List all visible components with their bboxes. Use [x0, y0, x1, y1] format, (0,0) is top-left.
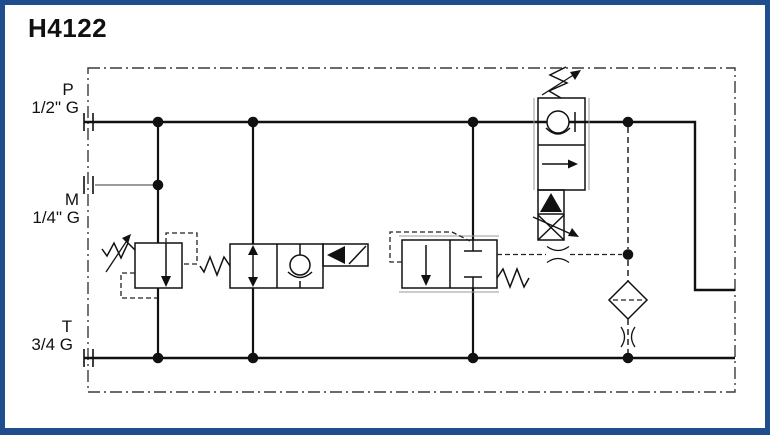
junction-dot [248, 117, 259, 128]
flow-arrowhead [568, 160, 578, 169]
junction-dot [153, 180, 164, 191]
solenoid-diagonal [349, 246, 366, 264]
page-border [0, 3, 770, 433]
junction-dot [153, 353, 164, 364]
junction-dot [153, 117, 164, 128]
spring-icon [549, 67, 567, 98]
solenoid-valve [200, 244, 368, 288]
pilot-triangle [540, 193, 562, 212]
valve-body [135, 243, 182, 288]
adjust-arrow-icon [106, 239, 128, 272]
check-valve-icon [290, 255, 310, 275]
flow-arrowhead-up [248, 245, 258, 255]
pilot-operated-valve [390, 232, 622, 292]
page-border-rect [3, 3, 768, 433]
adjust-arrowhead [570, 70, 581, 80]
adjust-arrowhead [568, 228, 579, 237]
port-p-size: 1/2" G [31, 98, 79, 117]
port-m-label: M [65, 190, 79, 209]
spring-icon [497, 269, 529, 287]
junction-dot [623, 249, 634, 260]
orifice-icon [547, 247, 569, 251]
port-t-label: T [62, 317, 72, 336]
page-title: H4122 [28, 13, 107, 43]
relief-valve [102, 233, 197, 298]
junction-dot [248, 353, 259, 364]
catalog-figure: H4122 P 1/2" G M 1/4" G T 3/4 G [0, 0, 770, 435]
drain-line [121, 273, 157, 298]
junction-dot [468, 353, 479, 364]
adjust-arrowhead [122, 234, 131, 244]
orifice-icon [632, 327, 636, 347]
port-p-label: P [62, 80, 73, 99]
port-m: M 1/4" G [32, 176, 158, 227]
orifice-icon [621, 327, 625, 347]
orifice-icon [547, 259, 569, 263]
spring-icon [200, 257, 230, 275]
port-m-size: 1/4" G [32, 208, 80, 227]
junction-dot [468, 117, 479, 128]
flow-compensator [533, 67, 589, 240]
flow-arrowhead [421, 275, 431, 286]
spring-icon [102, 243, 135, 258]
junction-dot [623, 353, 634, 364]
check-valve-icon [547, 111, 569, 133]
port-p: P 1/2" G [31, 80, 93, 131]
pilot-filter-branch [609, 127, 647, 353]
junction-dot [623, 117, 634, 128]
flow-arrowhead-down [248, 277, 258, 287]
port-t-size: 3/4 G [31, 335, 73, 354]
flow-arrowhead [161, 276, 171, 287]
manifold-boundary [88, 68, 735, 392]
hydraulic-schematic: H4122 P 1/2" G M 1/4" G T 3/4 G [0, 0, 770, 435]
adjust-arrow-icon [542, 74, 575, 95]
solenoid-triangle [327, 246, 345, 264]
port-t: T 3/4 G [31, 317, 93, 367]
